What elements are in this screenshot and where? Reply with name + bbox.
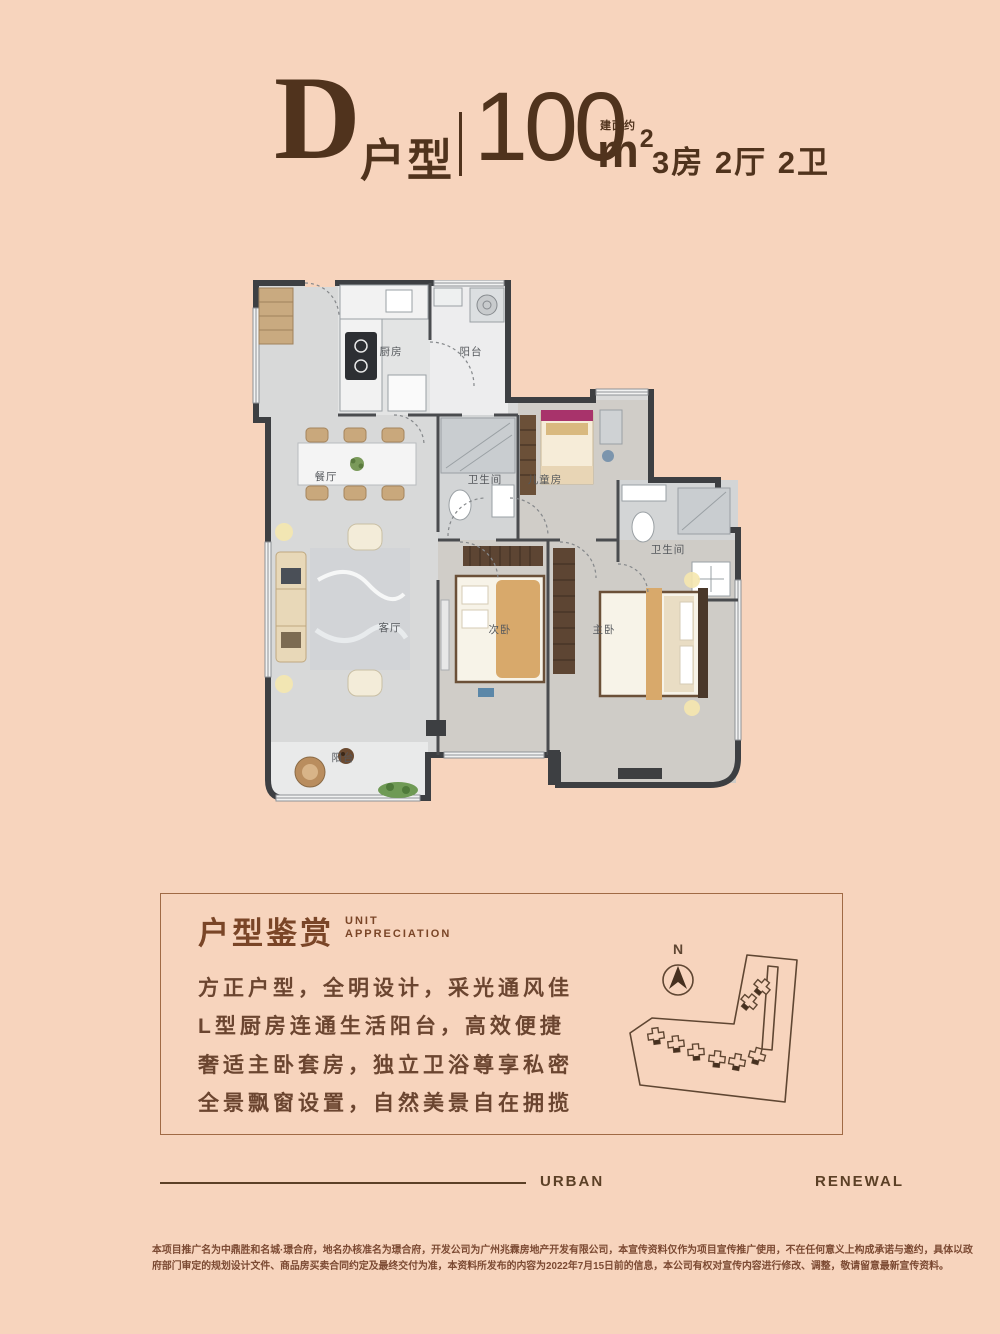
floorplan-svg: 厨房 阳台 餐厅 卫生间 儿童房 卫生间 客厅 次卧 主卧 阳台 <box>248 280 742 804</box>
title-divider <box>459 112 462 176</box>
room-label-balcony-top: 阳台 <box>460 345 483 358</box>
poster-page: D 户型 100 建面约 m2 3房 2厅 2卫 <box>0 0 1000 1334</box>
feature-line-2: L型厨房连通生活阳台，高效便捷 <box>198 1010 565 1040</box>
unit-letter: D <box>274 58 361 178</box>
appreciation-title-cn: 户型鉴赏 <box>198 908 334 953</box>
room-label-balcony-bottom: 阳台 <box>332 751 355 764</box>
entry-closet <box>259 288 293 344</box>
appreciation-title-en: UNIT APPRECIATION <box>345 915 451 941</box>
appreciation-title-en-line1: UNIT <box>345 915 451 928</box>
siteplan-svg: N <box>610 930 824 1122</box>
room-label-bedroom2: 次卧 <box>489 623 512 636</box>
compass-needle <box>669 966 687 989</box>
feature-line-3: 奢适主卧套房，独立卫浴尊享私密 <box>198 1049 573 1079</box>
footer-word-renewal: RENEWAL <box>815 1173 904 1190</box>
room-label-master: 主卧 <box>593 623 616 636</box>
feature-line-4: 全景飘窗设置，自然美景自在拥揽 <box>198 1087 573 1117</box>
room-label-kids-room: 儿童房 <box>528 473 563 486</box>
compass: N <box>663 941 693 995</box>
layout-spec: 3房 2厅 2卫 <box>652 137 830 182</box>
footer-word-urban: URBAN <box>540 1173 604 1190</box>
disclaimer-line-1: 本项目推广名为中鼎胜和名城·璟合府，地名办核准名为璟合府，开发公司为广州兆霖房地… <box>152 1243 863 1259</box>
room-label-dining: 餐厅 <box>315 470 338 483</box>
stove <box>345 332 377 380</box>
disclaimer: 本项目推广名为中鼎胜和名城·璟合府，地名办核准名为璟合府，开发公司为广州兆霖房地… <box>152 1243 874 1275</box>
unit-type-label: 户型 <box>360 124 454 189</box>
kids-bed-headboard <box>541 410 593 421</box>
disclaimer-line-2: 府部门审定的规划设计文件、商品房买卖合同约定及最终交付为准，本资料所发布的内容为… <box>152 1259 863 1275</box>
compass-n-label: N <box>673 941 683 957</box>
area-unit: m2 <box>597 127 653 174</box>
room-label-bath2: 卫生间 <box>651 543 686 556</box>
appreciation-title-en-line2: APPRECIATION <box>345 928 451 941</box>
room-label-kitchen: 厨房 <box>380 345 403 358</box>
dining-set <box>298 428 416 500</box>
feature-line-1: 方正户型，全明设计，采光通风佳 <box>198 972 573 1002</box>
room-label-bath1: 卫生间 <box>468 473 503 486</box>
room-label-living: 客厅 <box>379 621 402 634</box>
footer-rule <box>160 1182 526 1184</box>
area-unit-m: m <box>597 124 639 177</box>
